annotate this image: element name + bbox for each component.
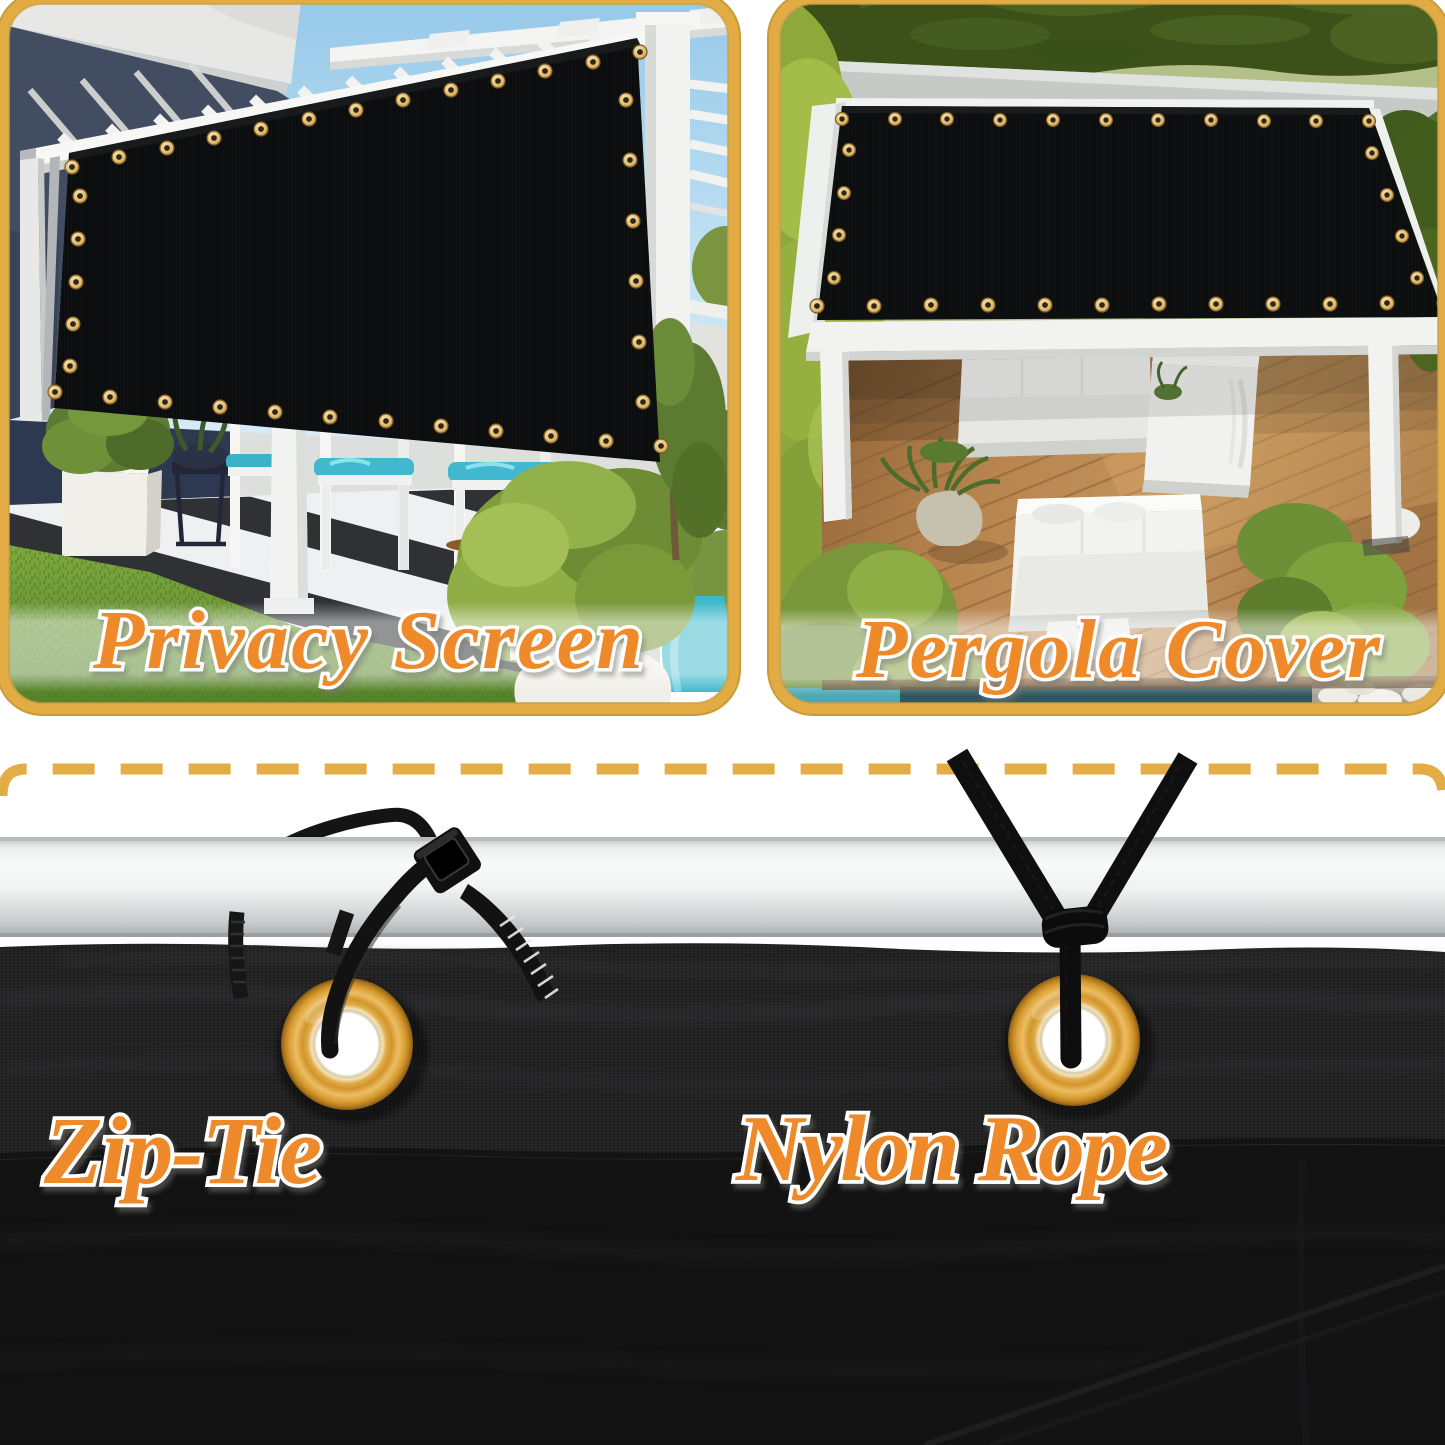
svg-text:Privacy Screen: Privacy Screen xyxy=(92,594,643,687)
svg-text:Zip-Tie: Zip-Tie xyxy=(43,1097,322,1204)
svg-text:Pergola Cover: Pergola Cover xyxy=(855,603,1381,696)
svg-text:Nylon Rope: Nylon Rope xyxy=(735,1097,1168,1201)
